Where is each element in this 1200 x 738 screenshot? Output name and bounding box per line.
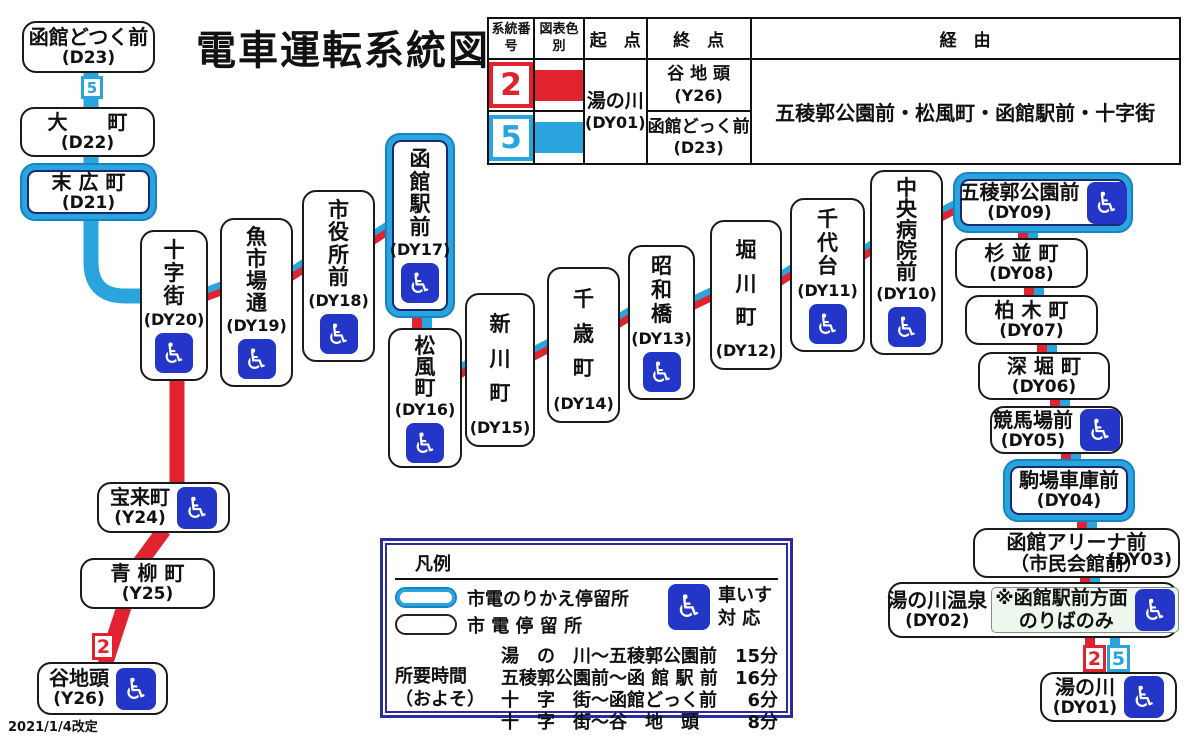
station-showabashi: 昭和橋(DY13)♿ [628,245,695,400]
station-name: 宝来町 [110,486,170,509]
station-fukaboricho: 深 堀 町(DY06) [978,352,1110,400]
station-core: 柏 木 町(DY07) [967,297,1096,343]
route-table: 系統番号 図表色別 起 点 終 点 経 由 2 湯の川 (DY01) 谷 地 頭… [487,17,1181,165]
regular-stop-symbol [395,614,457,635]
station-shiyakusho-mae: 市役所前(DY18)♿ [302,190,375,362]
station-core: 千歳町(DY14) [549,269,618,421]
travel-time-row: 五稜郭公園前～函 館 駅 前16分 [501,666,778,688]
wheelchair-icon: ♿ [177,487,217,529]
col-header-color: 図表色別 [534,18,584,59]
station-code: (DY11) [797,281,858,300]
station-code: (DY14) [553,394,614,413]
boarding-note-text: ※函館駅前方面のりばのみ [995,587,1127,633]
station-core: 市役所前(DY18)♿ [304,192,373,360]
station-hakodate-arena-mae: 函館アリーナ前（市民会館前）(DY03) [973,528,1180,578]
station-yachigashira: 谷地頭(Y26)♿ [37,662,168,715]
wheelchair-icon: ♿ [668,584,710,630]
station-label: 五稜郭公園前(DY09) [960,181,1080,224]
station-code: (DY10) [876,284,937,303]
station-name: 五稜郭公園前 [960,181,1080,204]
station-core: 湯の川温泉(DY02)※函館駅前方面のりばのみ♿ [890,584,1176,636]
station-name: 堀川町 [736,228,757,340]
legend-title: 凡例 [415,550,778,576]
station-chiyogadai: 千代台(DY11)♿ [790,198,865,352]
station-uoichiba-dori: 魚市場通(DY19)♿ [220,218,293,387]
station-code: (DY06) [1012,378,1076,398]
station-core: 競馬場前(DY05)♿ [992,408,1121,452]
station-horaicho: 宝来町(Y24)♿ [97,482,230,533]
travel-times: 所要時間 （およそ） 湯 の 川～五稜郭公園前15分 五稜郭公園前～函 館 駅 … [395,644,778,732]
station-name: 昭和橋 [651,253,672,328]
station-core: 深 堀 町(DY06) [980,354,1108,398]
station-code: (Y24) [114,509,166,529]
station-name: 新川町 [490,301,511,417]
transfer-stop-label: 市電のりかえ停留所 [467,585,629,611]
wheelchair-icon: ♿ [238,339,276,379]
station-name: 魚市場通 [246,226,267,315]
station-matsukazecho: 松風町(DY16)♿ [388,328,462,468]
station-goryokaku-koen-mae: 五稜郭公園前(DY09)♿ [953,172,1133,233]
col-header-route-no: 系統番号 [488,18,534,59]
station-code: (DY19) [226,316,287,335]
transfer-stop-symbol [395,587,457,608]
station-core: 函館どつく前(D23) [24,23,153,71]
station-name: 湯の川 [1055,676,1115,699]
station-hakodate-dokku-mae: 函館どつく前(D23) [22,21,155,73]
station-core: 宝来町(Y24)♿ [99,484,228,531]
station-keibajo-mae: 競馬場前(DY05)♿ [990,406,1123,454]
station-core: 堀川町(DY12) [712,222,780,368]
station-suginamicho: 杉 並 町(DY08) [955,238,1088,288]
station-suehirocho: 末 広 町(D21) [20,163,157,221]
station-chitosecho: 千歳町(DY14) [547,267,620,423]
station-label: 競馬場前(DY05) [993,409,1073,452]
station-name: 松風町 [415,336,436,399]
wheelchair-legend: ♿ 車いす 対 応 [668,584,772,631]
route-2-color-swatch [535,70,583,101]
station-name: 谷地頭 [49,667,109,690]
duration-label-line2: （およそ） [395,688,501,711]
col-header-terminus: 終 点 [647,18,751,59]
tram-route-map: 電車運転系統図 2021/1/4改定 系統番号 図表色別 起 点 終 点 経 由… [0,0,1200,738]
wheelchair-icon: ♿ [1135,589,1175,631]
station-yunokawa-onsen: 湯の川温泉(DY02)※函館駅前方面のりばのみ♿ [888,582,1178,638]
station-name: 大 町 [48,111,128,134]
station-code: (DY04) [1037,492,1101,512]
station-name: 市役所前 [328,198,349,290]
station-name: 青 柳 町 [111,562,185,585]
station-code: (DY05) [1001,432,1065,452]
station-name: 末 広 町 [52,171,126,194]
station-label: 大 町(D22) [48,111,128,154]
station-label: 末 広 町(D21) [52,171,126,214]
station-horikawacho: 堀川町(DY12) [710,220,782,370]
legend-divider [395,578,778,580]
station-name: 函館駅前 [410,148,431,239]
via-cell: 五稜郭公園前・松風町・函館駅前・十字街 [751,59,1180,164]
wheelchair-label-line2: 対 応 [718,607,772,630]
terminus-cell-route5: 函館どっく前 (D23) [647,111,751,164]
station-code: (Y25) [122,585,174,605]
station-label: 杉 並 町(DY08) [985,242,1059,285]
station-core: 千代台(DY11)♿ [792,200,863,350]
legend-box: 凡例 市電のりかえ停留所 市 電 停 留 所 ♿ 車いす 対 応 所要時間 [380,538,793,718]
station-core: 五稜郭公園前(DY09)♿ [960,179,1126,226]
terminus-cell-route2: 谷 地 頭 (Y26) [647,59,751,111]
station-label: 湯の川温泉(DY02) [887,589,987,632]
station-code: (DY09) [987,204,1051,224]
station-name: 柏 木 町 [995,299,1069,322]
station-code: (DY13) [631,329,692,348]
boarding-note-line2: のりばのみ [1019,610,1114,633]
route-2-badge: 2 [489,62,533,108]
station-name: 十字街 [164,238,185,309]
wheelchair-icon: ♿ [406,423,444,463]
boarding-note-line1: ※函館駅前方面 [995,587,1127,610]
station-core: 中央病院前(DY10)♿ [872,172,941,353]
station-code: (DY17) [390,240,451,259]
col-header-origin: 起 点 [584,18,647,59]
station-code: (DY03) [1108,550,1172,570]
station-code: (DY02) [905,612,969,632]
station-name: 駒場車庫前 [1019,469,1119,492]
station-label: 函館どつく前(D23) [29,26,148,69]
station-kashiwagicho: 柏 木 町(DY07) [965,295,1098,345]
station-yunokawa: 湯の川(DY01)♿ [1040,672,1177,722]
station-core: 新川町(DY15) [467,295,533,445]
station-name: 杉 並 町 [985,242,1059,265]
wheelchair-icon: ♿ [116,668,156,710]
station-name: 深 堀 町 [1007,355,1081,378]
station-code: (DY15) [470,418,531,437]
wheelchair-icon: ♿ [809,304,847,344]
station-name: 湯の川温泉 [887,589,987,612]
station-code: (D23) [62,49,115,69]
wheelchair-icon: ♿ [888,307,926,347]
revision-note: 2021/1/4改定 [8,716,98,735]
wheelchair-icon: ♿ [401,263,439,303]
travel-time-row: 湯 の 川～五稜郭公園前15分 [501,644,778,666]
station-name: 函館どつく前 [29,26,148,49]
station-core: 末 広 町(D21) [27,170,150,214]
wheelchair-icon: ♿ [1124,676,1164,718]
station-label: 湯の川(DY01) [1053,676,1117,719]
station-shinkawacho: 新川町(DY15) [465,293,535,447]
route-5-color-swatch [535,122,583,153]
origin-cell: 湯の川 (DY01) [584,59,647,164]
station-name: 競馬場前 [993,409,1073,432]
station-core: 松風町(DY16)♿ [390,330,460,466]
station-label: 深 堀 町(DY06) [1007,355,1081,398]
col-header-via: 経 由 [751,18,1180,59]
station-code: (D22) [61,134,114,154]
station-label: 宝来町(Y24) [110,486,170,529]
wheelchair-icon: ♿ [320,314,358,354]
station-omachi: 大 町(D22) [20,107,155,157]
route-5-marker: 5 [1107,645,1130,672]
station-name: 中央病院前 [896,178,917,283]
duration-label-line1: 所要時間 [395,665,501,688]
station-core: 大 町(D22) [22,109,153,155]
boarding-note: ※函館駅前方面のりばのみ♿ [991,587,1178,633]
station-code: (Y26) [53,690,105,710]
station-name: 千代台 [817,206,838,280]
station-code: (DY08) [989,265,1053,285]
station-aoyagicho: 青 柳 町(Y25) [80,558,215,609]
travel-time-row: 十 字 街～函館どっく前6分 [501,688,778,710]
station-label: 駒場車庫前(DY04) [1019,469,1119,512]
station-code: (DY16) [395,400,456,419]
station-name: 千歳町 [573,275,594,393]
station-code: (DY20) [144,310,205,329]
route-2-marker: 2 [92,633,115,660]
wheelchair-icon: ♿ [1087,182,1127,224]
station-label: 谷地頭(Y26) [49,667,109,710]
station-code: (DY01) [1053,699,1117,719]
station-label: 青 柳 町(Y25) [111,562,185,605]
station-core: 青 柳 町(Y25) [82,560,213,607]
station-code: (D21) [62,194,115,214]
station-code: (DY12) [716,341,777,360]
station-core: 谷地頭(Y26)♿ [39,664,166,713]
page-title: 電車運転系統図 [196,18,490,76]
station-core: 函館駅前(DY17)♿ [392,140,448,311]
station-core: 昭和橋(DY13)♿ [630,247,693,398]
travel-time-row: 十 字 街～谷 地 頭8分 [501,710,778,732]
station-jujigai: 十字街(DY20)♿ [140,230,208,381]
station-chuo-byoin-mae: 中央病院前(DY10)♿ [870,170,943,355]
route-5-marker: 5 [81,76,103,99]
wheelchair-icon: ♿ [643,352,681,392]
regular-stop-label: 市 電 停 留 所 [467,612,582,638]
station-label: 柏 木 町(DY07) [995,299,1069,342]
wheelchair-icon: ♿ [1080,409,1120,451]
station-komaba-shako-mae: 駒場車庫前(DY04) [1003,459,1135,522]
station-core: 駒場車庫前(DY04) [1010,466,1128,515]
wheelchair-icon: ♿ [155,333,193,373]
station-core: 十字街(DY20)♿ [142,232,206,379]
station-core: 湯の川(DY01)♿ [1042,674,1175,720]
station-hakodate-ekimae: 函館駅前(DY17)♿ [385,133,455,318]
route-5-badge: 5 [489,115,533,161]
route-2-marker: 2 [1083,645,1106,672]
wheelchair-label-line1: 車いす [718,584,772,607]
station-code: (DY07) [999,322,1063,342]
station-code: (DY18) [308,291,369,310]
station-core: 杉 並 町(DY08) [957,240,1086,286]
station-core: 魚市場通(DY19)♿ [222,220,291,385]
